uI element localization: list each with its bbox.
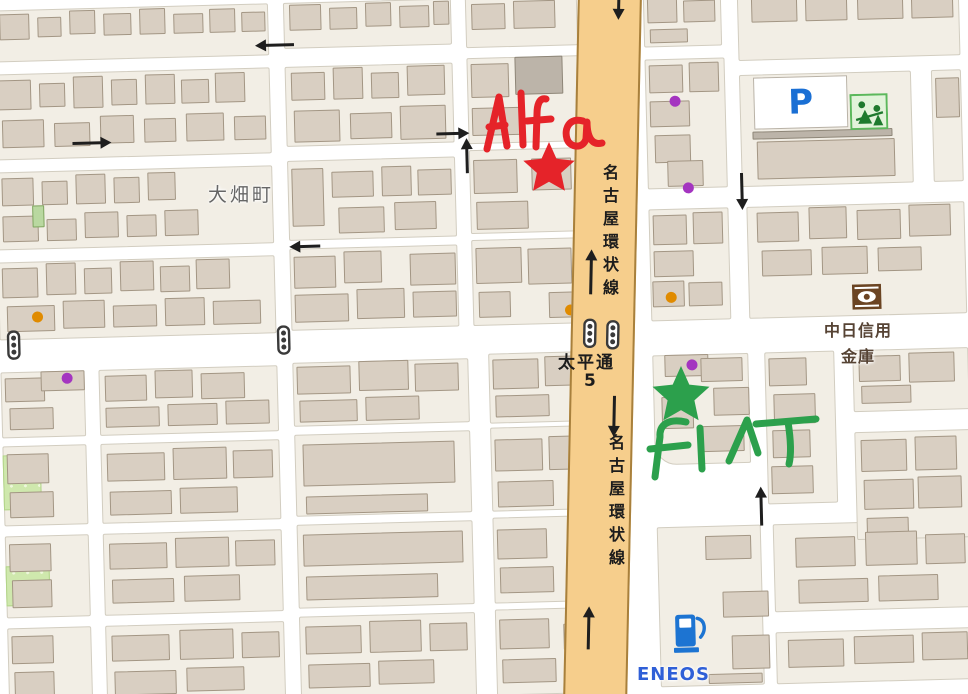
building xyxy=(291,72,326,101)
bank-icon xyxy=(851,283,882,310)
building xyxy=(331,171,374,198)
building xyxy=(294,109,341,142)
building xyxy=(407,65,446,96)
one-way-arrow-left xyxy=(255,37,295,54)
building xyxy=(433,1,450,25)
building xyxy=(105,406,160,427)
building xyxy=(371,72,400,99)
building xyxy=(144,118,177,143)
building xyxy=(145,74,176,105)
building xyxy=(773,393,816,424)
bank-name-line1: 中日信用 xyxy=(824,317,892,341)
building xyxy=(409,253,456,286)
building xyxy=(683,0,716,22)
building xyxy=(105,375,148,402)
building xyxy=(2,267,39,298)
traffic-light-icon xyxy=(583,318,598,348)
building xyxy=(650,28,688,43)
building xyxy=(500,566,555,593)
one-way-arrow-up xyxy=(580,606,597,650)
building xyxy=(84,211,119,238)
building xyxy=(1,178,34,207)
ring-road-name-top: 名古屋環状線 xyxy=(597,164,621,302)
building xyxy=(75,174,106,205)
building xyxy=(213,300,262,325)
building xyxy=(181,79,210,104)
building xyxy=(241,631,280,658)
traffic-light-icon xyxy=(276,325,291,355)
building xyxy=(358,360,409,391)
gas-pump-icon xyxy=(673,610,708,655)
building xyxy=(857,0,904,20)
building xyxy=(713,387,750,416)
building xyxy=(306,573,439,600)
building xyxy=(294,256,337,289)
one-way-arrow-right xyxy=(71,134,111,151)
building xyxy=(922,631,968,660)
building xyxy=(107,452,166,482)
building xyxy=(417,169,452,196)
building xyxy=(109,542,168,570)
building xyxy=(475,247,522,284)
building xyxy=(103,13,132,36)
building xyxy=(175,537,230,568)
building xyxy=(911,0,954,18)
building xyxy=(495,394,550,417)
building xyxy=(935,77,960,118)
building xyxy=(821,246,868,275)
building xyxy=(289,4,322,31)
building xyxy=(235,539,276,566)
building xyxy=(41,181,68,206)
building xyxy=(861,385,911,404)
building xyxy=(0,80,32,111)
building xyxy=(709,673,763,684)
building xyxy=(908,204,951,237)
building xyxy=(700,357,743,382)
building xyxy=(233,449,274,478)
ring-road-name-bottom: 名古屋環状線 xyxy=(603,434,627,572)
building xyxy=(661,396,694,429)
building xyxy=(184,574,241,601)
building xyxy=(343,250,382,283)
building xyxy=(492,358,539,389)
building xyxy=(369,620,422,653)
building xyxy=(805,0,848,21)
building xyxy=(234,115,267,140)
building xyxy=(291,168,325,227)
building xyxy=(196,258,231,289)
one-way-arrow-down xyxy=(610,0,627,20)
building xyxy=(688,282,723,307)
building xyxy=(654,134,691,163)
building xyxy=(808,206,847,239)
building xyxy=(798,578,869,604)
building xyxy=(113,304,158,327)
building xyxy=(649,65,684,94)
building xyxy=(494,438,543,471)
building xyxy=(147,172,176,201)
building xyxy=(751,0,798,23)
building xyxy=(186,113,225,142)
building xyxy=(69,10,96,35)
building xyxy=(795,536,856,568)
building xyxy=(476,201,529,230)
building xyxy=(356,288,405,319)
building xyxy=(861,439,908,472)
building xyxy=(9,407,54,430)
building xyxy=(514,56,563,95)
building xyxy=(917,475,962,508)
traffic-light-icon xyxy=(605,320,620,350)
building xyxy=(111,634,170,662)
building xyxy=(37,17,62,38)
intersection-name-label: 太平通 xyxy=(558,348,615,373)
building xyxy=(689,62,720,93)
building xyxy=(378,659,435,684)
building xyxy=(126,214,157,237)
building xyxy=(12,579,53,608)
building xyxy=(702,425,745,452)
building xyxy=(877,246,922,271)
building xyxy=(381,166,412,197)
building xyxy=(647,0,678,23)
building xyxy=(502,658,557,683)
one-way-arrow-up xyxy=(753,486,770,526)
town-label: 大畑町 xyxy=(208,180,274,207)
building xyxy=(39,83,66,108)
building xyxy=(5,377,46,402)
one-way-arrow-up xyxy=(458,138,475,174)
building xyxy=(303,530,464,566)
building xyxy=(186,666,245,692)
building xyxy=(172,447,227,480)
building xyxy=(73,76,104,109)
building xyxy=(338,206,385,233)
building xyxy=(63,300,106,329)
building xyxy=(333,67,364,100)
building xyxy=(732,634,771,669)
building xyxy=(160,265,191,292)
building xyxy=(399,5,430,28)
one-way-arrow-down xyxy=(733,172,750,210)
building xyxy=(120,260,155,291)
building xyxy=(46,262,77,295)
building xyxy=(299,399,358,423)
building xyxy=(865,531,918,566)
building xyxy=(10,491,55,518)
building xyxy=(302,441,455,487)
building xyxy=(306,493,428,514)
building xyxy=(722,590,769,617)
building xyxy=(173,13,204,34)
one-way-arrow-left xyxy=(289,238,321,255)
building xyxy=(497,480,554,507)
playground-icon xyxy=(849,93,888,130)
building xyxy=(471,63,510,98)
building xyxy=(295,293,350,322)
building xyxy=(11,635,54,664)
building xyxy=(394,201,437,230)
building xyxy=(110,490,173,516)
building xyxy=(209,8,236,33)
building xyxy=(914,435,957,470)
building xyxy=(472,107,525,136)
building xyxy=(308,663,371,689)
building xyxy=(111,79,138,106)
one-way-arrow-down xyxy=(606,395,623,437)
building xyxy=(692,212,723,245)
building xyxy=(329,7,358,30)
building xyxy=(139,8,166,35)
building xyxy=(653,214,688,245)
building xyxy=(350,112,393,139)
building xyxy=(757,138,896,180)
building xyxy=(925,533,966,564)
building xyxy=(201,372,246,399)
building xyxy=(14,671,55,694)
intersection-number-label: 5 xyxy=(584,371,596,391)
building xyxy=(296,365,351,394)
building xyxy=(527,247,572,284)
building xyxy=(878,574,939,602)
building xyxy=(305,625,362,654)
building xyxy=(164,209,199,236)
building xyxy=(429,622,468,651)
building xyxy=(412,291,457,318)
building xyxy=(112,578,175,604)
building xyxy=(513,0,556,29)
building xyxy=(225,399,270,424)
parking-label: P xyxy=(788,85,814,120)
building xyxy=(788,638,845,667)
building xyxy=(7,453,50,484)
building xyxy=(757,212,800,243)
building xyxy=(114,670,177,694)
building xyxy=(864,479,915,510)
parking-area: P xyxy=(753,75,848,129)
building xyxy=(154,369,193,398)
building xyxy=(854,635,915,665)
building xyxy=(365,2,392,27)
building xyxy=(762,249,813,276)
building xyxy=(179,628,234,659)
building xyxy=(113,177,140,204)
building xyxy=(46,218,77,241)
building xyxy=(531,157,572,190)
map-geometry-layer: P xyxy=(0,0,968,694)
building xyxy=(499,618,550,649)
bank-name-line2: 金庫 xyxy=(841,343,875,367)
building xyxy=(241,11,266,32)
building xyxy=(9,543,52,572)
building xyxy=(471,3,506,30)
poi-dot-purple xyxy=(683,182,694,193)
building xyxy=(365,396,420,421)
building xyxy=(772,429,811,458)
building xyxy=(768,357,807,386)
building xyxy=(2,119,45,148)
building xyxy=(32,205,45,227)
building xyxy=(165,297,206,326)
building xyxy=(414,362,459,391)
building xyxy=(479,291,512,318)
building xyxy=(654,250,695,277)
building xyxy=(167,403,218,426)
building xyxy=(856,209,901,240)
building xyxy=(84,268,113,295)
building xyxy=(215,72,246,103)
building xyxy=(180,486,239,514)
building xyxy=(0,14,30,41)
building xyxy=(497,528,548,559)
building xyxy=(705,535,752,560)
map-canvas: P 大畑町 名古屋環状線 名古屋環状線 太平通 5 中日信用 xyxy=(0,0,968,694)
building xyxy=(771,465,814,494)
building xyxy=(7,305,56,332)
traffic-light-icon xyxy=(6,330,21,360)
building xyxy=(908,351,955,382)
gas-station-label: ENEOS xyxy=(637,664,710,685)
building xyxy=(473,159,518,194)
